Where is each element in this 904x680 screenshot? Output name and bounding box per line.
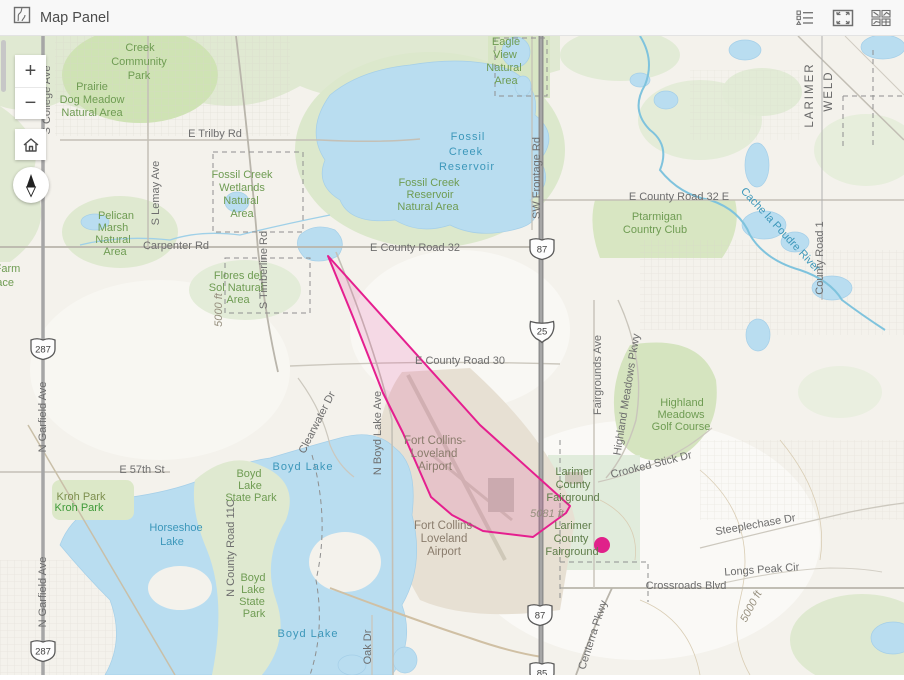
map-label: Larimer — [555, 466, 593, 478]
map-canvas: 28728787878525 E Trilby RdCarpenter RdE … — [0, 36, 904, 675]
map-label: Fairground — [546, 492, 599, 504]
zoom-controls: + − — [15, 55, 46, 119]
map-label: E County Road 30 — [415, 355, 505, 367]
map-label: Meadows — [657, 409, 705, 421]
map-label: N Garfield Ave — [37, 557, 49, 628]
map-label: Boyd — [236, 468, 261, 480]
map-label: Park — [128, 70, 151, 82]
map-label: View — [493, 49, 517, 61]
map-label: Natural Area — [61, 107, 123, 119]
map-label: N County Road 11C — [225, 499, 237, 597]
map-label: E County Road 32 — [370, 242, 460, 254]
map-label: Boyd Lake — [278, 628, 339, 640]
us-highway-shield-287: 287 — [31, 641, 55, 662]
svg-text:87: 87 — [537, 245, 548, 256]
map-label: N Boyd Lake Ave — [372, 391, 384, 475]
map-label: Community — [111, 56, 167, 68]
map-label: Airport — [418, 461, 453, 473]
map-label: Creek — [125, 42, 155, 54]
map-label: Lake — [241, 584, 265, 596]
legend-icon[interactable] — [792, 5, 818, 31]
map-label: w Farm — [0, 263, 20, 275]
map-label: Oak Dr — [362, 629, 374, 664]
map-label: Creek — [449, 146, 483, 158]
scrollbar-thumb[interactable] — [1, 40, 6, 92]
map-view[interactable]: 28728787878525 E Trilby RdCarpenter RdE … — [0, 36, 904, 675]
map-label: Marsh — [98, 222, 129, 234]
map-label: Fossil Creek — [398, 177, 460, 189]
map-label: County — [556, 479, 591, 491]
map-label: N Garfield Ave — [37, 382, 49, 453]
map-label: Highland — [660, 397, 703, 409]
map-label: Park — [243, 608, 266, 620]
map-label: Horseshoe — [149, 522, 202, 534]
map-label: Airport — [427, 546, 462, 558]
map-label: Boyd Lake — [273, 461, 334, 473]
map-label: E 57th St — [119, 464, 164, 476]
map-label: Crossroads Blvd — [646, 580, 727, 592]
us-highway-shield-87: 87 — [530, 239, 554, 260]
map-label: Eagle — [492, 36, 520, 48]
map-label: Country Club — [623, 224, 687, 236]
map-label: Flores del — [214, 270, 262, 282]
map-label: Sol Natural — [209, 282, 263, 294]
zoom-in-button[interactable]: + — [15, 55, 46, 87]
layout-grid-icon[interactable] — [868, 5, 894, 31]
map-label: Fort Collins- — [414, 520, 476, 532]
map-label: Lake — [238, 480, 262, 492]
map-label: Fairgrounds Ave — [592, 335, 604, 415]
map-label: Fairground — [545, 546, 598, 558]
svg-text:87: 87 — [535, 611, 546, 622]
home-icon — [22, 136, 40, 154]
map-label: WELD — [823, 70, 835, 111]
map-panel-icon — [13, 6, 31, 29]
panel-title: Map Panel — [40, 10, 109, 26]
map-label: Ptarmigan — [632, 211, 682, 223]
zoom-out-button[interactable]: − — [15, 87, 46, 119]
map-label: SW Frontage Rd — [531, 137, 543, 219]
map-label: Reservoir — [406, 189, 453, 201]
svg-text:287: 287 — [35, 345, 51, 356]
map-label: Fort Collins- — [404, 435, 466, 447]
home-button[interactable] — [15, 129, 46, 160]
map-label: LARIMER — [804, 62, 816, 127]
us-highway-shield-85: 85 — [530, 663, 554, 675]
map-label: Natural — [223, 195, 258, 207]
map-label: E County Road 32 E — [629, 191, 729, 203]
map-label: 5000 ft — [213, 292, 225, 327]
compass-button[interactable] — [13, 167, 49, 203]
map-label: Area — [103, 246, 127, 258]
compass-needle-icon — [18, 172, 44, 198]
expand-icon[interactable] — [830, 5, 856, 31]
map-label: Fossil — [451, 131, 486, 143]
map-label: Area — [226, 294, 250, 306]
map-label: Prairie — [76, 81, 108, 93]
map-label: pace — [0, 277, 14, 289]
map-label: County — [554, 533, 589, 545]
us-highway-shield-87: 87 — [528, 605, 552, 626]
map-label: Pelican — [98, 210, 134, 222]
map-label: Dog Meadow — [60, 94, 125, 106]
map-label: Kroh Park — [55, 502, 104, 514]
map-label: Golf Course — [652, 421, 711, 433]
svg-text:85: 85 — [537, 669, 548, 676]
map-label: Area — [230, 208, 254, 220]
map-label: Carpenter Rd — [143, 240, 209, 252]
map-label: Reservoir — [439, 161, 495, 173]
map-label: Boyd — [240, 572, 265, 584]
us-highway-shield-287: 287 — [31, 339, 55, 360]
map-label: Loveland — [421, 533, 468, 545]
map-label: E Trilby Rd — [188, 128, 242, 140]
map-label: Natural Area — [397, 201, 459, 213]
map-label: Natural — [95, 234, 130, 246]
map-label: State Park — [225, 492, 277, 504]
map-label: Loveland — [411, 448, 458, 460]
map-label: S Lemay Ave — [150, 161, 162, 226]
svg-text:287: 287 — [35, 647, 51, 658]
map-label: Wetlands — [219, 182, 265, 194]
svg-text:25: 25 — [537, 327, 548, 338]
map-label: Area — [494, 75, 518, 87]
map-label: 5081 ft — [530, 508, 565, 520]
map-label: Larimer — [554, 520, 592, 532]
map-label: Natural — [486, 62, 521, 74]
map-label: State — [239, 596, 265, 608]
map-label: Lake — [160, 536, 184, 548]
map-label: Fossil Creek — [211, 169, 273, 181]
panel-header: Map Panel — [0, 0, 904, 36]
